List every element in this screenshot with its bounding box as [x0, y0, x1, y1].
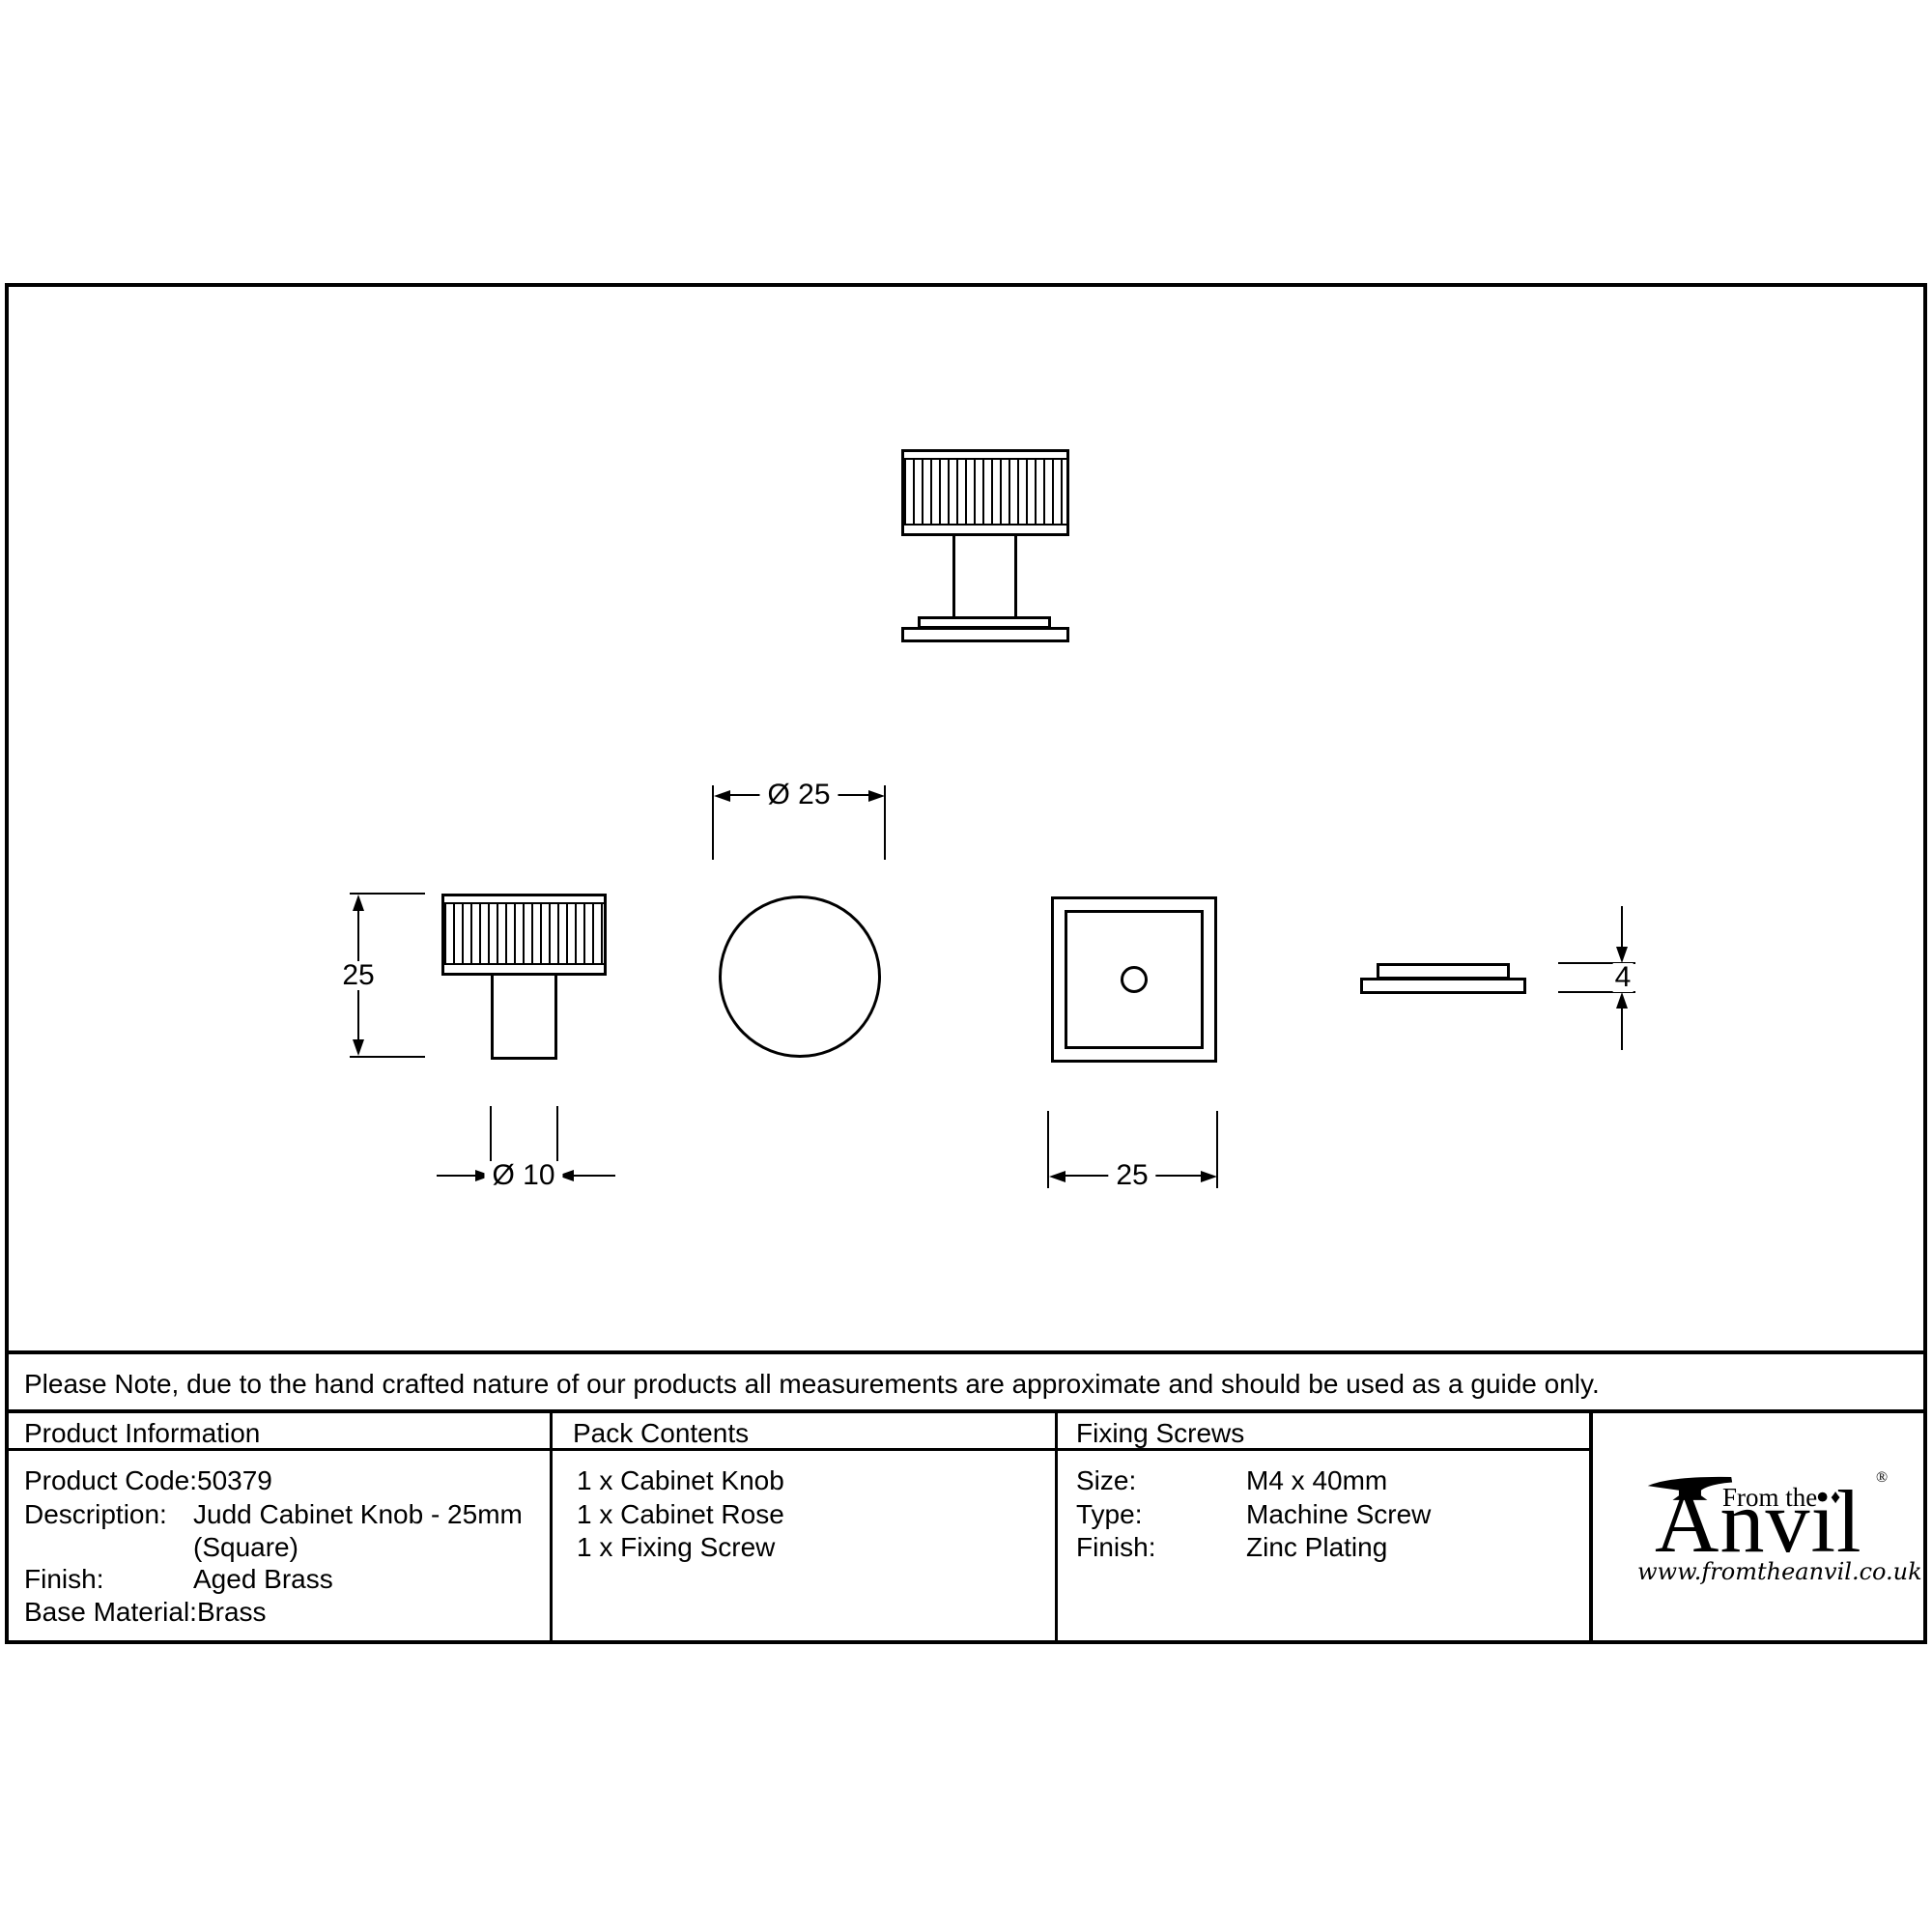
knob-front-stem [952, 536, 1017, 617]
row-value: (Square) [193, 1532, 298, 1563]
row-label: Finish: [24, 1564, 193, 1595]
column-header-fixing-screws: Fixing Screws [1076, 1418, 1244, 1449]
rose-front-lower-plate [901, 627, 1069, 642]
knob-side-stem [491, 976, 557, 1060]
diamond-icon: ♦ [1831, 1487, 1840, 1509]
table-row: Finish: Zinc Plating [1076, 1532, 1387, 1563]
row-label: Description: [24, 1499, 193, 1530]
knob-front-fluted-cap [901, 449, 1069, 536]
dim-arrow-down [353, 1039, 364, 1056]
row-value: M4 x 40mm [1246, 1465, 1387, 1496]
dim-arrow-left [714, 790, 730, 802]
table-column-divider [550, 1409, 553, 1644]
row-label [24, 1532, 193, 1563]
dim-knob-diameter: Ø 25 [759, 781, 838, 810]
row-value: Zinc Plating [1246, 1532, 1387, 1563]
from-the-anvil-logo: Anvil From the ♦ ® www.fromtheanvil.co.u… [1637, 1463, 1898, 1589]
dim-rose-thickness: 4 [1613, 963, 1634, 992]
table-column-divider [1589, 1409, 1593, 1644]
table-row: Base Material: Brass [24, 1597, 267, 1628]
brand-website: www.fromtheanvil.co.uk [1637, 1558, 1890, 1585]
pack-contents-item: 1 x Cabinet Rose [577, 1499, 784, 1530]
table-top-border [5, 1409, 1927, 1413]
column-header-pack-contents: Pack Contents [573, 1418, 749, 1449]
dim-arrow-right [1201, 1171, 1217, 1182]
dim-line [1621, 906, 1623, 950]
row-label: Base Material: [24, 1597, 197, 1628]
dim-line [573, 1175, 615, 1177]
dim-arrow-up [1616, 992, 1628, 1009]
row-label: Product Code: [24, 1465, 197, 1496]
table-row: Finish: Aged Brass [24, 1564, 333, 1595]
spec-sheet: 25 Ø 10 Ø 25 25 [0, 0, 1932, 1932]
knob-top-circle [719, 895, 881, 1058]
row-value: Machine Screw [1246, 1499, 1431, 1530]
knurl-flutes [444, 902, 604, 965]
dim-rose-width: 25 [1108, 1161, 1155, 1190]
table-row: Description: Judd Cabinet Knob - 25mm [24, 1499, 523, 1530]
registered-trademark-symbol: ® [1876, 1469, 1888, 1487]
dim-knob-height: 25 [334, 961, 382, 990]
row-value: 50379 [197, 1465, 272, 1496]
pack-contents-item: 1 x Cabinet Knob [577, 1465, 784, 1496]
table-column-divider [1055, 1409, 1058, 1644]
row-label: Type: [1076, 1499, 1246, 1530]
table-row: (Square) [24, 1532, 298, 1563]
dim-arrow-up [353, 895, 364, 911]
rose-square-outer [1051, 896, 1217, 1063]
dim-stem-diameter: Ø 10 [484, 1161, 562, 1190]
dim-line [437, 1175, 479, 1177]
knurl-flutes [904, 458, 1066, 526]
row-value: Aged Brass [193, 1564, 333, 1595]
table-row: Type: Machine Screw [1076, 1499, 1431, 1530]
table-row: Product Code: 50379 [24, 1465, 272, 1496]
brand-tagline: From the [1722, 1483, 1817, 1513]
dim-arrow-right [868, 790, 885, 802]
dim-line [1621, 1007, 1623, 1050]
row-label: Size: [1076, 1465, 1246, 1496]
column-header-product-information: Product Information [24, 1418, 260, 1449]
row-label: Finish: [1076, 1532, 1246, 1563]
dim-extension-line [350, 1056, 425, 1058]
row-value: Judd Cabinet Knob - 25mm [193, 1499, 523, 1530]
pack-contents-item: 1 x Fixing Screw [577, 1532, 775, 1563]
rose-profile-lower [1360, 978, 1526, 994]
rose-screw-hole [1121, 966, 1148, 993]
measurement-note: Please Note, due to the hand crafted nat… [24, 1369, 1600, 1400]
knob-side-fluted-cap [441, 894, 607, 976]
note-row-top-border [5, 1350, 1927, 1354]
table-row: Size: M4 x 40mm [1076, 1465, 1387, 1496]
dim-arrow-left [1049, 1171, 1065, 1182]
row-value: Brass [197, 1597, 267, 1628]
